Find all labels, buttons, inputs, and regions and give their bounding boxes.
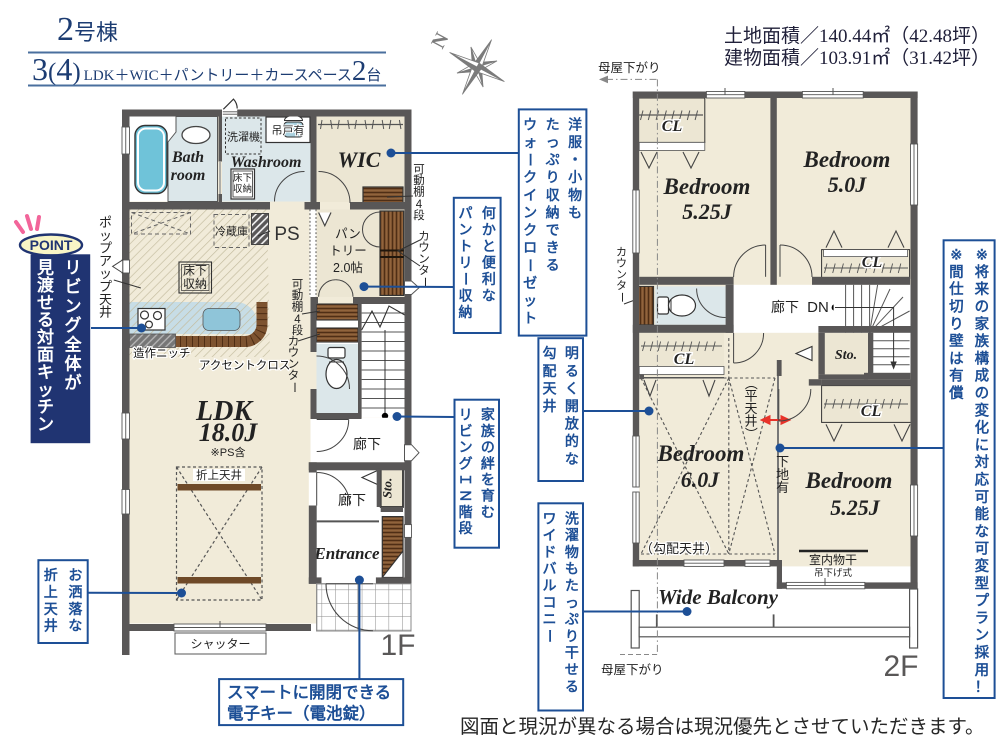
svg-text:な: な — [482, 287, 496, 303]
svg-text:カ: カ — [288, 335, 300, 348]
svg-text:ン: ン — [65, 297, 82, 316]
svg-text:収: 収 — [546, 187, 561, 203]
svg-text:5.0J: 5.0J — [828, 172, 868, 197]
svg-text:CL: CL — [861, 403, 882, 420]
svg-text:折: 折 — [44, 567, 58, 583]
svg-text:ン: ン — [459, 221, 473, 237]
svg-text:Washroom: Washroom — [231, 154, 302, 171]
svg-text:土地面積／140.44㎡（42.48坪）: 土地面積／140.44㎡（42.48坪） — [724, 24, 990, 47]
svg-text:井: 井 — [44, 618, 58, 634]
svg-text:せ: せ — [565, 662, 579, 678]
svg-text:る: る — [565, 678, 579, 694]
svg-text:る: る — [546, 257, 560, 273]
svg-text:な: な — [565, 451, 579, 467]
svg-text:カ: カ — [616, 246, 627, 259]
svg-text:PS: PS — [274, 224, 299, 245]
svg-text:棚: 棚 — [292, 300, 304, 314]
svg-text:（勾配天井）: （勾配天井） — [640, 541, 718, 556]
svg-text:ン: ン — [37, 415, 54, 434]
svg-text:ウ: ウ — [418, 241, 430, 254]
svg-text:き: き — [546, 240, 560, 256]
svg-text:せ: せ — [37, 293, 54, 312]
svg-text:バ: バ — [543, 561, 557, 577]
svg-text:Bedroom: Bedroom — [657, 441, 745, 466]
svg-text:将: 将 — [975, 263, 990, 281]
svg-text:電子キー（電池錠）: 電子キー（電池錠） — [227, 703, 376, 723]
svg-text:と: と — [482, 238, 496, 254]
svg-text:階: 階 — [459, 504, 473, 520]
svg-text:イ: イ — [523, 187, 537, 203]
svg-text:切: 切 — [949, 298, 964, 315]
svg-text:ー: ー — [288, 382, 300, 394]
svg-text:た: た — [546, 116, 560, 132]
svg-text:Wide Balcony: Wide Balcony — [658, 585, 779, 609]
svg-text:グ: グ — [459, 455, 473, 471]
svg-text:Ｎ: Ｎ — [458, 489, 474, 503]
svg-text:く: く — [565, 380, 579, 396]
svg-text:ト: ト — [523, 310, 537, 326]
svg-text:ぷ: ぷ — [545, 152, 560, 168]
svg-text:間: 間 — [949, 264, 964, 281]
svg-text:る: る — [565, 363, 579, 379]
svg-text:か: か — [482, 221, 496, 237]
svg-text:濯: 濯 — [565, 527, 579, 543]
svg-text:族: 族 — [975, 332, 990, 350]
svg-text:ウ: ウ — [288, 346, 300, 359]
svg-text:利: 利 — [482, 271, 496, 287]
svg-text:絆: 絆 — [481, 455, 495, 471]
svg-text:償: 償 — [948, 384, 964, 402]
svg-text:ロ: ロ — [523, 240, 537, 256]
svg-text:洗: 洗 — [565, 510, 579, 526]
svg-text:図面と現況が異なる場合は現況優先とさせていただきます。: 図面と現況が異なる場合は現況優先とさせていただきます。 — [460, 716, 985, 738]
svg-text:！: ！ — [975, 680, 990, 696]
svg-text:※: ※ — [950, 248, 962, 264]
svg-text:の: の — [975, 299, 990, 315]
svg-text:ー: ー — [522, 153, 538, 167]
svg-text:廊下: 廊下 — [771, 299, 799, 315]
svg-text:室内物干: 室内物干 — [809, 552, 857, 567]
svg-text:族: 族 — [481, 423, 496, 439]
svg-text:チ: チ — [37, 398, 54, 417]
svg-text:家: 家 — [975, 315, 990, 333]
svg-text:上: 上 — [44, 584, 58, 600]
svg-text:ー: ー — [522, 258, 538, 272]
svg-text:ン: ン — [616, 269, 627, 281]
svg-text:も: も — [568, 204, 582, 220]
svg-text:POINT: POINT — [30, 237, 73, 253]
svg-text:が: が — [65, 373, 82, 393]
svg-text:吊戸有: 吊戸有 — [272, 123, 305, 137]
svg-text:型: 型 — [975, 574, 990, 592]
svg-text:動: 動 — [292, 288, 304, 302]
svg-text:何: 何 — [482, 205, 496, 221]
svg-text:ン: ン — [418, 254, 430, 266]
svg-text:グ: グ — [65, 315, 82, 335]
svg-text:Bath: Bath — [171, 149, 204, 166]
svg-text:る: る — [37, 311, 54, 330]
svg-text:18.0J: 18.0J — [199, 418, 259, 447]
svg-text:ー: ー — [458, 272, 474, 286]
svg-text:スマートに開閉できる: スマートに開閉できる — [227, 683, 391, 702]
svg-text:Bedroom: Bedroom — [803, 147, 891, 172]
svg-text:パン: パン — [335, 227, 361, 241]
svg-text:Sto.: Sto. — [835, 348, 857, 363]
svg-text:シャッター: シャッター — [190, 637, 250, 651]
svg-text:Bedroom: Bedroom — [805, 468, 893, 493]
svg-text:ン: ン — [975, 628, 990, 644]
svg-text:は: は — [949, 350, 964, 367]
svg-text:造作ニッチ: 造作ニッチ — [133, 346, 191, 360]
svg-text:DN: DN — [807, 299, 829, 316]
svg-text:成: 成 — [975, 367, 990, 385]
svg-text:・: ・ — [568, 152, 582, 168]
svg-text:2F: 2F — [883, 650, 918, 683]
svg-text:CL: CL — [662, 118, 683, 135]
svg-text:井: 井 — [99, 305, 112, 320]
svg-text:ワ: ワ — [543, 510, 557, 526]
svg-text:対: 対 — [36, 327, 54, 347]
svg-text:変: 変 — [975, 557, 990, 575]
svg-text:化: 化 — [975, 419, 990, 437]
svg-text:で: で — [546, 222, 560, 238]
svg-text:CL: CL — [674, 351, 695, 368]
svg-text:1F: 1F — [380, 629, 415, 662]
svg-text:収納: 収納 — [233, 183, 252, 195]
svg-text:採: 採 — [975, 643, 990, 661]
svg-text:洒: 洒 — [68, 584, 82, 600]
svg-text:冷蔵庫: 冷蔵庫 — [215, 224, 248, 238]
svg-text:物: 物 — [565, 544, 579, 560]
svg-text:納: 納 — [546, 204, 560, 220]
svg-text:明: 明 — [565, 345, 579, 361]
svg-text:アクセントクロス: アクセントクロス — [199, 359, 290, 372]
svg-text:っ: っ — [565, 594, 579, 610]
svg-text:干: 干 — [565, 645, 579, 661]
svg-text:放: 放 — [564, 416, 580, 432]
svg-text:対: 対 — [974, 453, 990, 471]
svg-text:面: 面 — [37, 346, 54, 365]
svg-text:）: ） — [744, 427, 759, 440]
svg-text:床下: 床下 — [183, 264, 207, 278]
svg-text:見: 見 — [36, 259, 54, 278]
svg-text:り: り — [546, 169, 560, 185]
svg-text:Sto.: Sto. — [380, 478, 395, 499]
svg-text:段: 段 — [459, 520, 473, 536]
svg-text:勾: 勾 — [543, 345, 557, 361]
svg-text:も: も — [565, 561, 579, 577]
svg-text:洋: 洋 — [568, 116, 582, 132]
svg-text:来: 来 — [974, 280, 990, 298]
svg-text:タ: タ — [288, 369, 300, 382]
svg-text:※: ※ — [976, 248, 988, 264]
svg-text:井: 井 — [543, 398, 557, 414]
svg-text:ル: ル — [543, 578, 557, 594]
svg-text:有: 有 — [776, 480, 789, 495]
svg-text:ラ: ラ — [975, 611, 990, 627]
svg-text:む: む — [481, 504, 495, 520]
svg-text:プ: プ — [975, 593, 990, 610]
svg-text:落: 落 — [68, 601, 83, 617]
svg-text:リ: リ — [459, 254, 473, 270]
svg-text:全: 全 — [64, 334, 83, 354]
svg-text:廊下: 廊下 — [353, 436, 381, 452]
svg-text:服: 服 — [568, 134, 583, 150]
svg-text:体: 体 — [65, 354, 83, 374]
svg-text:天: 天 — [543, 380, 558, 396]
svg-text:仕: 仕 — [948, 280, 964, 298]
svg-text:ビ: ビ — [459, 423, 473, 439]
svg-text:Ｉ: Ｉ — [458, 473, 474, 487]
svg-text:吊下げ式: 吊下げ式 — [814, 567, 853, 579]
svg-text:Entrance: Entrance — [313, 544, 380, 563]
svg-text:を: を — [481, 472, 495, 488]
svg-text:天: 天 — [44, 601, 59, 617]
svg-text:ク: ク — [523, 222, 537, 238]
svg-text:配: 配 — [543, 363, 557, 379]
svg-text:育: 育 — [481, 488, 495, 504]
svg-text:床下: 床下 — [233, 172, 252, 184]
svg-text:ウ: ウ — [616, 257, 627, 270]
svg-text:ン: ン — [288, 359, 300, 371]
svg-text:用: 用 — [975, 662, 990, 679]
svg-text:5.25J: 5.25J — [682, 199, 733, 224]
svg-text:お: お — [68, 567, 82, 583]
svg-text:ド: ド — [543, 544, 557, 560]
svg-text:ぷ: ぷ — [564, 611, 579, 627]
svg-text:廊下: 廊下 — [338, 492, 366, 508]
svg-text:段: 段 — [413, 208, 425, 222]
svg-text:に: に — [975, 438, 990, 454]
svg-text:Bedroom: Bedroom — [663, 174, 751, 199]
svg-text:物: 物 — [568, 187, 582, 203]
svg-text:り: り — [565, 628, 579, 644]
svg-text:2.0帖: 2.0帖 — [333, 260, 363, 275]
svg-text:ン: ン — [523, 204, 537, 220]
svg-text:カ: カ — [418, 230, 430, 243]
svg-text:5.25J: 5.25J — [830, 495, 881, 520]
svg-text:ウ: ウ — [523, 116, 537, 132]
svg-text:可: 可 — [975, 541, 990, 558]
svg-text:ー: ー — [542, 629, 558, 643]
svg-text:有: 有 — [949, 367, 964, 385]
svg-text:り: り — [949, 316, 964, 333]
svg-text:な: な — [68, 618, 82, 634]
svg-text:可: 可 — [413, 164, 425, 176]
svg-text:能: 能 — [975, 505, 990, 523]
svg-text:リ: リ — [65, 259, 82, 278]
svg-text:4: 4 — [294, 314, 301, 326]
svg-text:納: 納 — [459, 304, 473, 320]
svg-text:た: た — [565, 578, 579, 594]
svg-text:ォ: ォ — [523, 134, 537, 150]
svg-text:母屋下がり: 母屋下がり — [601, 662, 664, 677]
svg-text:イ: イ — [543, 527, 557, 543]
svg-text:ト: ト — [459, 238, 473, 254]
svg-text:動: 動 — [413, 173, 425, 187]
svg-text:母屋下がり: 母屋下がり — [598, 60, 661, 75]
svg-text:建物面積／103.91㎡（31.42坪）: 建物面積／103.91㎡（31.42坪） — [724, 46, 990, 69]
svg-text:の: の — [975, 386, 990, 402]
svg-text:っ: っ — [546, 134, 560, 150]
svg-text:の: の — [481, 439, 495, 455]
svg-text:ー: ー — [616, 292, 628, 303]
svg-text:ッ: ッ — [523, 292, 537, 308]
svg-text:ゼ: ゼ — [523, 275, 537, 291]
svg-text:渡: 渡 — [37, 275, 55, 295]
svg-text:開: 開 — [565, 398, 579, 414]
svg-text:WIC: WIC — [338, 147, 381, 172]
svg-text:コ: コ — [543, 594, 557, 610]
svg-text:小: 小 — [568, 169, 582, 185]
svg-text:折上天井: 折上天井 — [196, 468, 242, 482]
svg-text:洗濯機: 洗濯機 — [227, 130, 260, 144]
svg-text:ク: ク — [523, 169, 537, 185]
svg-text:収: 収 — [459, 287, 474, 303]
svg-text:トリー: トリー — [329, 244, 367, 258]
svg-text:変: 変 — [975, 401, 990, 419]
svg-text:4: 4 — [416, 199, 423, 211]
svg-text:便: 便 — [482, 254, 497, 270]
svg-text:棚: 棚 — [413, 185, 425, 199]
svg-text:可: 可 — [975, 489, 990, 506]
svg-text:な: な — [975, 523, 990, 540]
svg-text:応: 応 — [975, 470, 990, 488]
svg-text:ッ: ッ — [37, 380, 54, 399]
svg-text:ニ: ニ — [543, 611, 557, 627]
svg-text:ン: ン — [459, 439, 473, 455]
svg-text:可: 可 — [292, 279, 304, 291]
svg-text:タ: タ — [616, 279, 627, 292]
svg-text:キ: キ — [37, 363, 54, 382]
svg-text:※PS含: ※PS含 — [211, 445, 246, 459]
svg-text:リ: リ — [459, 407, 473, 423]
svg-text:room: room — [171, 167, 206, 184]
svg-text:的: 的 — [565, 433, 579, 449]
svg-text:家: 家 — [481, 407, 496, 423]
svg-text:壁: 壁 — [949, 332, 964, 350]
svg-text:収納: 収納 — [183, 277, 207, 291]
svg-text:ビ: ビ — [65, 278, 82, 297]
svg-text:パ: パ — [459, 205, 473, 221]
svg-text:6.0J: 6.0J — [681, 467, 721, 492]
svg-text:構: 構 — [975, 349, 990, 367]
